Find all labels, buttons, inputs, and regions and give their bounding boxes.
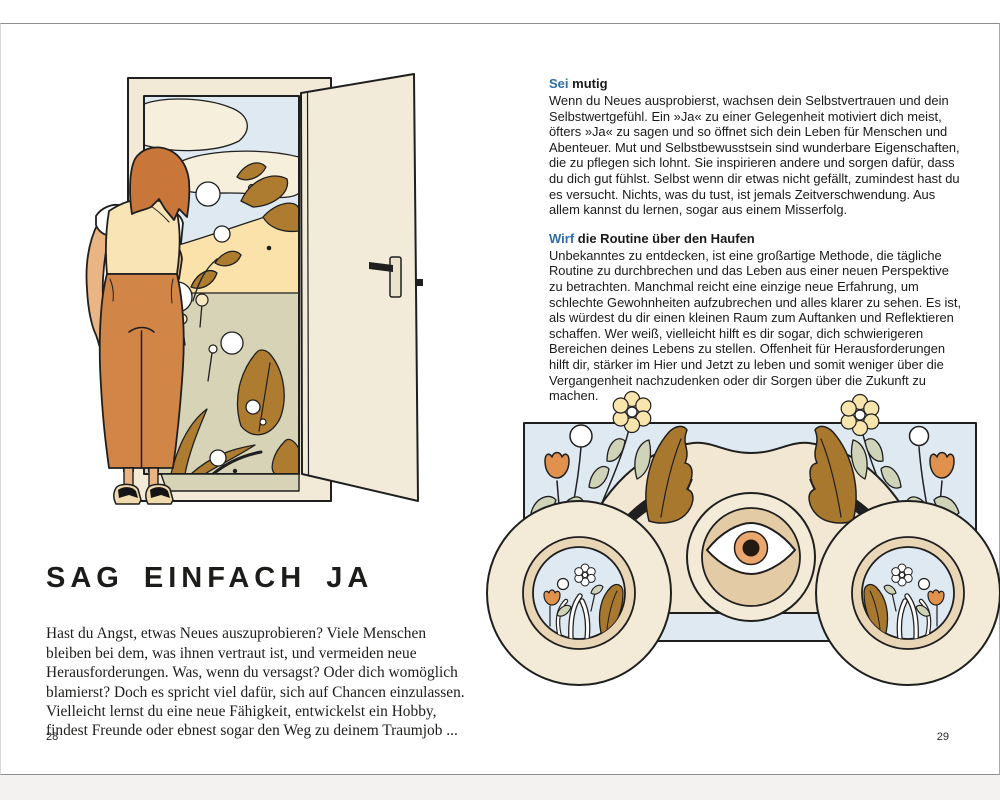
door-threshold <box>161 474 299 491</box>
title-rest: die Routine über den Haufen <box>578 231 755 246</box>
page-title: SAG EINFACH JA <box>46 562 486 595</box>
title-rest: mutig <box>572 76 607 91</box>
page-spread: SAG EINFACH JA Hast du Angst, etwas Neue… <box>0 23 1000 775</box>
section-routine: Wirf die Routine über den Haufen Unbekan… <box>549 231 966 404</box>
puff-flower <box>570 425 592 447</box>
puff-flower <box>910 427 929 446</box>
tulip-flower <box>545 453 569 479</box>
woman-figure <box>86 147 189 504</box>
daisy-flower <box>613 392 651 433</box>
page-number-right: 29 <box>937 731 949 743</box>
center-lens <box>687 493 815 621</box>
open-door-panel <box>301 74 423 501</box>
lead-word: Sei <box>549 76 569 91</box>
page-bottom-edge <box>0 775 1000 800</box>
book-spread: SAG EINFACH JA Hast du Angst, etwas Neue… <box>0 0 1000 800</box>
door-handle-plate <box>390 257 401 297</box>
page-number-left: 28 <box>46 731 58 743</box>
right-text-column: Sei mutig Wenn du Neues ausprobierst, wa… <box>549 76 966 417</box>
section-body: Unbekanntes zu entdecken, ist eine großa… <box>549 248 966 404</box>
section-title: Wirf die Routine über den Haufen <box>549 231 966 247</box>
section-body: Wenn du Neues ausprobierst, wachsen dein… <box>549 93 966 218</box>
lead-word: Wirf <box>549 231 574 246</box>
section-sei-mutig: Sei mutig Wenn du Neues ausprobierst, wa… <box>549 76 966 218</box>
daisy-flower <box>841 395 879 436</box>
left-lens <box>487 501 671 685</box>
intro-paragraph: Hast du Angst, etwas Neues auszuprobiere… <box>46 624 470 740</box>
section-title: Sei mutig <box>549 76 966 92</box>
tulip-flower <box>930 453 954 479</box>
door-illustration <box>61 61 471 561</box>
binoculars-illustration <box>481 386 1000 761</box>
door-latch <box>415 279 423 286</box>
right-lens <box>816 501 1000 685</box>
